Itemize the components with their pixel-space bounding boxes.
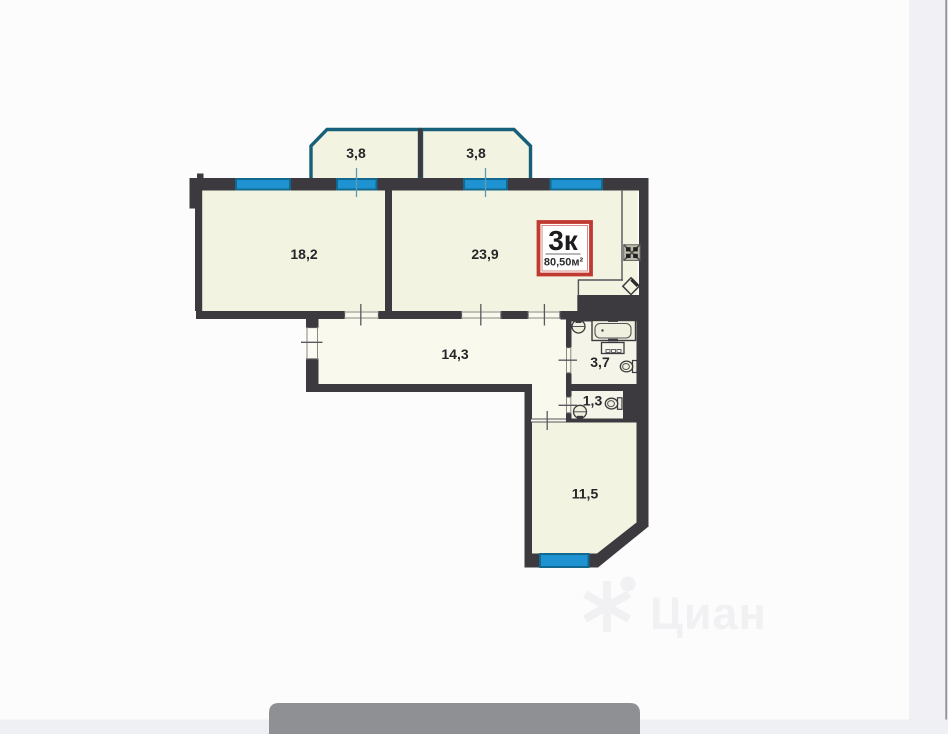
svg-text:1,3: 1,3 <box>583 393 603 409</box>
svg-text:14,3: 14,3 <box>441 346 468 362</box>
svg-text:3,8: 3,8 <box>346 145 366 161</box>
svg-text:23,9: 23,9 <box>471 246 498 262</box>
svg-text:3,7: 3,7 <box>590 354 610 370</box>
svg-text:18,2: 18,2 <box>290 246 317 262</box>
svg-text:3,8: 3,8 <box>466 145 486 161</box>
svg-text:11,5: 11,5 <box>572 486 599 502</box>
svg-text:Циан: Циан <box>650 588 767 639</box>
svg-text:3к: 3к <box>548 225 579 256</box>
svg-text:80,50м²: 80,50м² <box>544 257 584 269</box>
